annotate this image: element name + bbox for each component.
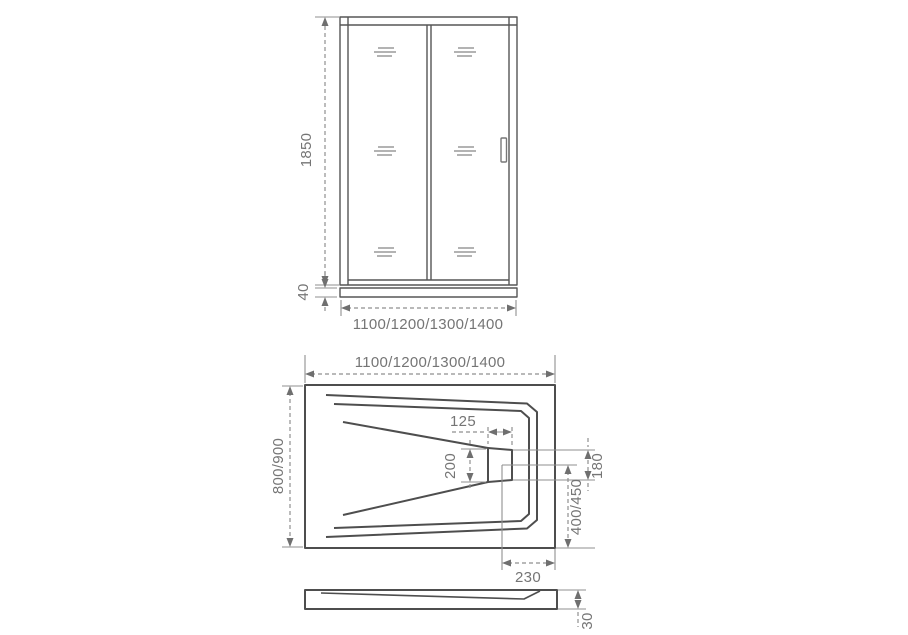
drain-center-offset-dimension: 400/450 [565,465,586,548]
door-height-label: 1850 [298,133,315,168]
tray-depth-label: 800/900 [270,438,287,494]
door-outer-frame [340,17,517,285]
drain-width-label: 125 [450,413,476,430]
door-height-dimension: 1850 [298,17,339,285]
tray-depth-dimension: 800/900 [270,386,303,547]
door-sill-height-label: 40 [295,283,312,300]
door-handle [501,138,507,162]
tray-width-label: 1100/1200/1300/1400 [355,354,506,371]
door-front-view: 1850 40 1100/1200/1300/1400 [295,17,517,333]
technical-drawing: 1850 40 1100/1200/1300/1400 [0,0,908,635]
drain-edge-offset-label: 230 [515,569,541,586]
tray-side-view: 30 [305,590,596,630]
drain-right-side-label: 180 [589,453,606,479]
tray-width-dimension: 1100/1200/1300/1400 [305,354,555,383]
tray-slope-lines [343,422,488,515]
drain-edge-offset-dimension: 230 [502,560,555,587]
door-inner-frame [340,17,517,285]
glass-mark [454,147,476,155]
tray-rim-outer [326,395,537,537]
glass-mark [374,48,396,56]
glass-mark [454,48,476,56]
drain-center-offset-label: 400/450 [568,479,585,535]
glass-mark [374,147,396,155]
glass-mark [454,248,476,256]
drain-left-side-label: 200 [442,453,459,479]
door-panel-divider [427,25,431,280]
door-width-label: 1100/1200/1300/1400 [353,316,504,333]
door-sill-height-dimension: 40 [295,272,337,313]
door-sill [340,288,517,297]
tray-plan-view: 1100/1200/1300/1400 800/900 125 200 [270,354,606,586]
tray-height-label: 30 [579,612,596,629]
technical-drawing-page: 1850 40 1100/1200/1300/1400 [0,0,908,635]
tray-height-dimension: 30 [558,590,596,630]
door-width-dimension: 1100/1200/1300/1400 [341,300,516,333]
drain-right-side-dimension: 180 [585,438,607,491]
tray-profile-slope [321,591,540,599]
glass-mark [374,248,396,256]
